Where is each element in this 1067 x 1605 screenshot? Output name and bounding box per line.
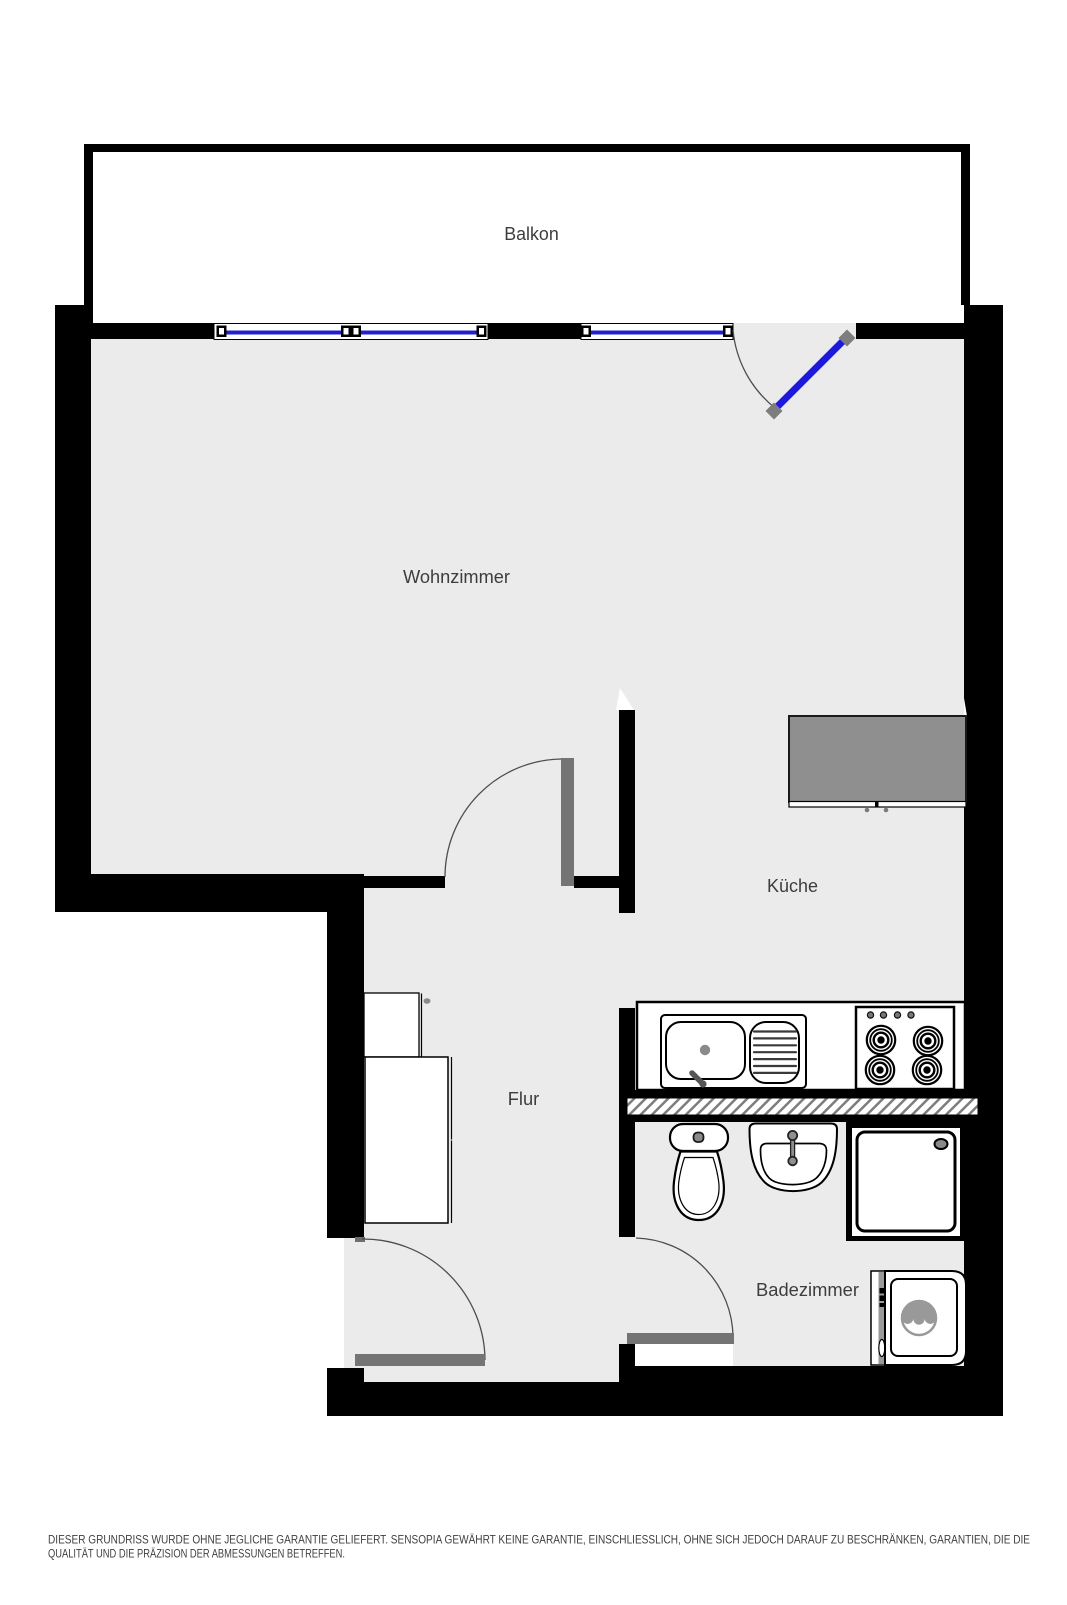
svg-text:Badezimmer: Badezimmer [756, 1280, 859, 1300]
svg-text:DIESER GRUNDRISS WURDE OHNE JE: DIESER GRUNDRISS WURDE OHNE JEGLICHE GAR… [48, 1535, 1030, 1547]
svg-text:Flur: Flur [508, 1089, 540, 1109]
svg-text:Wohnzimmer: Wohnzimmer [403, 567, 510, 587]
svg-text:QUALITÄT UND DIE PRÄZISION DER: QUALITÄT UND DIE PRÄZISION DER ABMESSUNG… [48, 1549, 345, 1561]
svg-text:Küche: Küche [767, 876, 818, 896]
svg-text:Balkon: Balkon [504, 224, 559, 244]
